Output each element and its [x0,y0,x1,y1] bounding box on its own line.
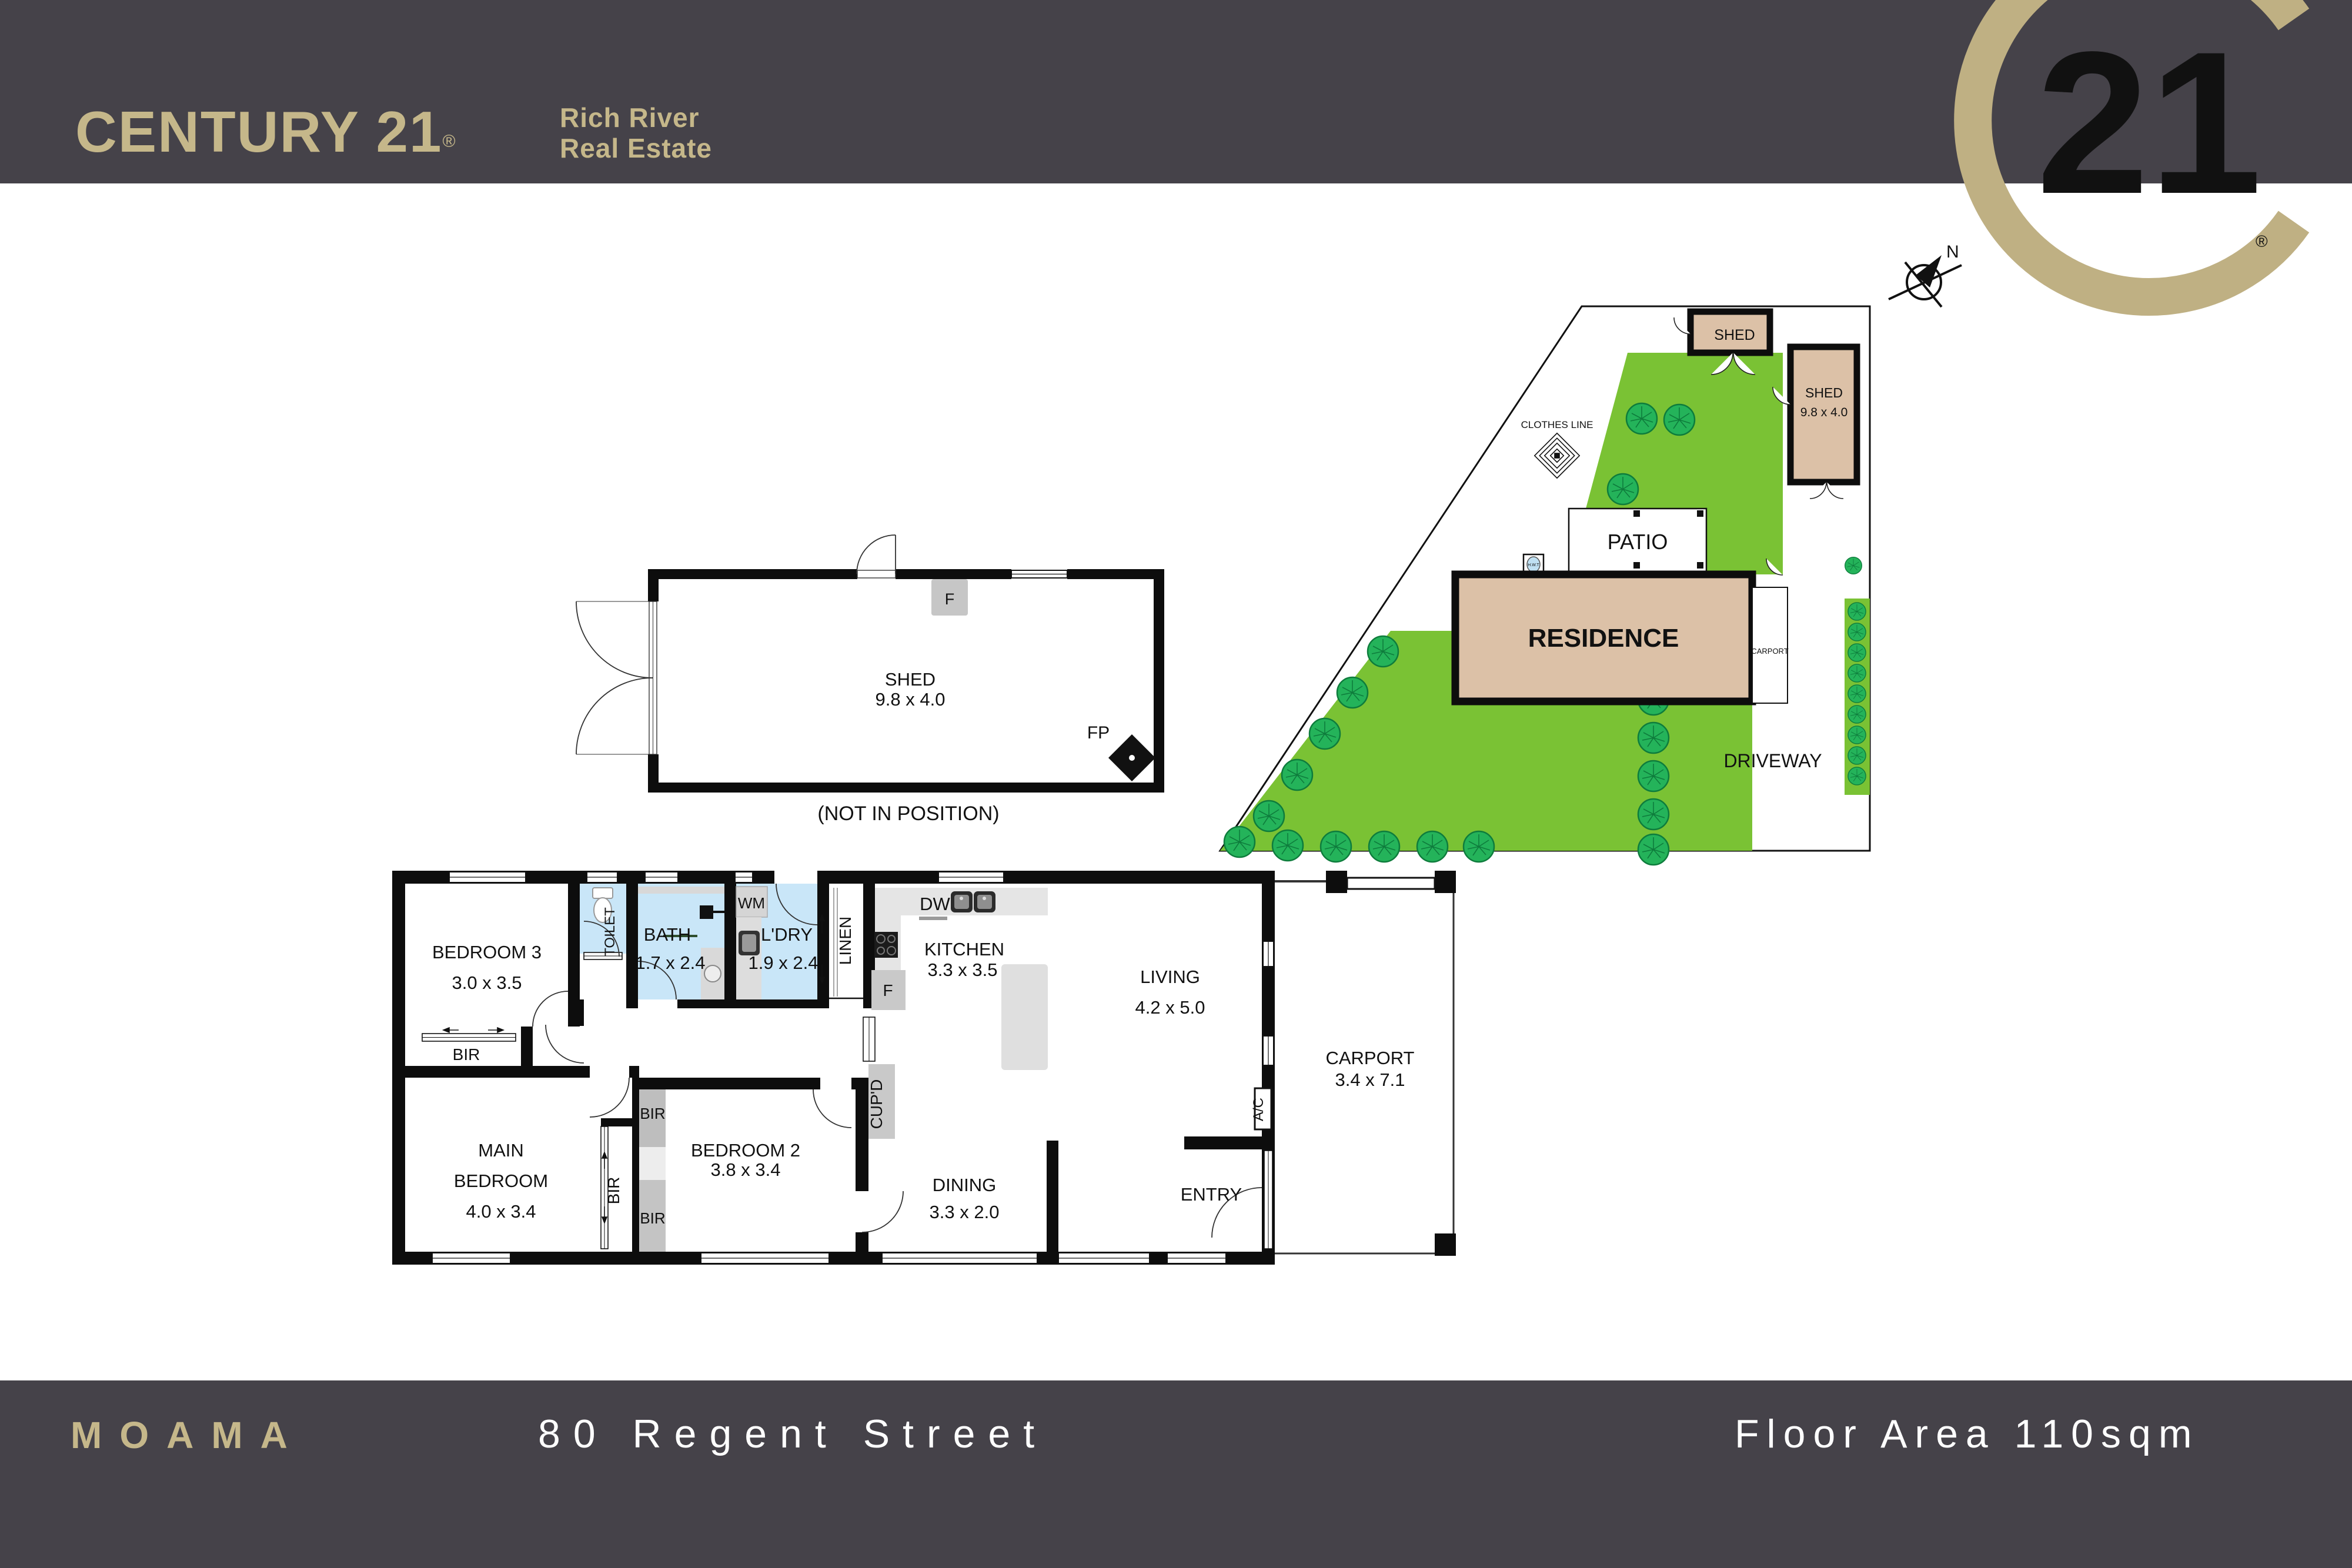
footer-address: 80 Regent Street [538,1411,1047,1457]
office-line2: Real Estate [560,133,712,164]
site-patio-label: PATIO [1608,530,1668,554]
footer-suburb: MOAMA [71,1413,305,1457]
bir-bed2-top-label: BIR [640,1105,665,1122]
dining-name: DINING [933,1175,997,1195]
site-carport [1752,587,1788,703]
bedroom2-dims: 3.8 x 3.4 [711,1159,781,1180]
entry-label: ENTRY [1181,1184,1242,1205]
site-carport-label: CARPORT [1751,647,1788,656]
ac-label: A/C [1251,1098,1267,1121]
cooktop-icon [874,932,898,958]
site-plan: CLOTHES LINE PATIO H.W.T RESIDENCE CARPO… [1220,306,1870,865]
floorplan-canvas: 21 ® N [0,0,2352,1568]
bath-dims: 1.7 x 2.4 [636,952,706,973]
carport-dims: 3.4 x 7.1 [1335,1069,1405,1090]
compass-north-label: N [1946,242,1959,262]
bir-main-label: BIR [604,1177,623,1205]
shed-fridge-label: F [945,590,955,608]
toilet-label: TOILET [602,907,618,957]
hwt-label: H.W.T [1528,563,1539,567]
office-line1: Rich River [560,103,712,133]
wm-label: WM [738,894,765,912]
seal-registered-mark: ® [2256,232,2268,250]
bir-bed2-bottom-label: BIR [640,1209,665,1227]
main-bedroom-line2: BEDROOM [454,1171,548,1191]
shed-note-label: (NOT IN POSITION) [817,803,999,825]
main-bedroom-dims: 4.0 x 3.4 [466,1201,536,1222]
office-name: Rich River Real Estate [560,103,712,163]
kitchen-dims: 3.3 x 3.5 [928,959,998,980]
registered-mark: ® [443,132,457,151]
bedroom3-name: BEDROOM 3 [432,942,542,962]
compass-icon [1889,255,1962,307]
footer-floor-area: Floor Area 110sqm [1735,1411,2199,1457]
seal-number: 21 [2036,10,2262,236]
site-residence-label: RESIDENCE [1528,624,1679,653]
site-shed-large-dims: 9.8 x 4.0 [1800,406,1848,419]
fridge-label: F [883,981,893,999]
laundry-trough-icon [739,931,760,955]
ldry-name: L'DRY [761,924,813,945]
main-bedroom-line1: MAIN [478,1140,524,1161]
c21-seal-icon: 21 ® [1973,0,2294,297]
brand-name: CENTURY 21 [75,99,443,164]
brand-logo: CENTURY 21® [75,99,457,165]
living-dims: 4.2 x 5.0 [1135,997,1205,1018]
shed-fireplace-label: FP [1087,723,1110,743]
clothes-line-label: CLOTHES LINE [1521,419,1593,430]
bath-name: BATH [644,924,691,945]
living-name: LIVING [1140,967,1200,987]
bedroom3-dims: 3.0 x 3.5 [452,972,522,993]
shed-window [1011,570,1067,578]
island-bench [1001,964,1048,1070]
house-plan: BEDROOM 3 3.0 x 3.5 TOILET BATH 1.7 x 2.… [392,871,1456,1265]
shed-dims-label: 9.8 x 4.0 [876,689,946,710]
carport-name: CARPORT [1325,1048,1414,1068]
linen-label: LINEN [836,917,854,965]
site-driveway-label: DRIVEWAY [1723,750,1822,771]
kitchen-name: KITCHEN [924,939,1004,959]
bedroom2-name: BEDROOM 2 [691,1140,800,1161]
shed-name-label: SHED [885,669,936,690]
site-shed-large-label: SHED [1805,385,1843,400]
bath-hob [638,887,724,894]
ldry-dims: 1.9 x 2.4 [749,952,818,973]
bench-lip [919,917,947,920]
shed-door [857,535,896,578]
cupd-label: CUP'D [867,1079,886,1129]
bir-bed3-label: BIR [453,1045,480,1064]
site-shed-small-label: SHED [1714,327,1755,343]
dw-label: DW [920,894,950,914]
shed-double-doors [576,601,657,754]
dining-dims: 3.3 x 2.0 [930,1202,1000,1222]
shed-plan: F FP SHED 9.8 x 4.0 (NOT IN POSITION) [576,535,1164,825]
